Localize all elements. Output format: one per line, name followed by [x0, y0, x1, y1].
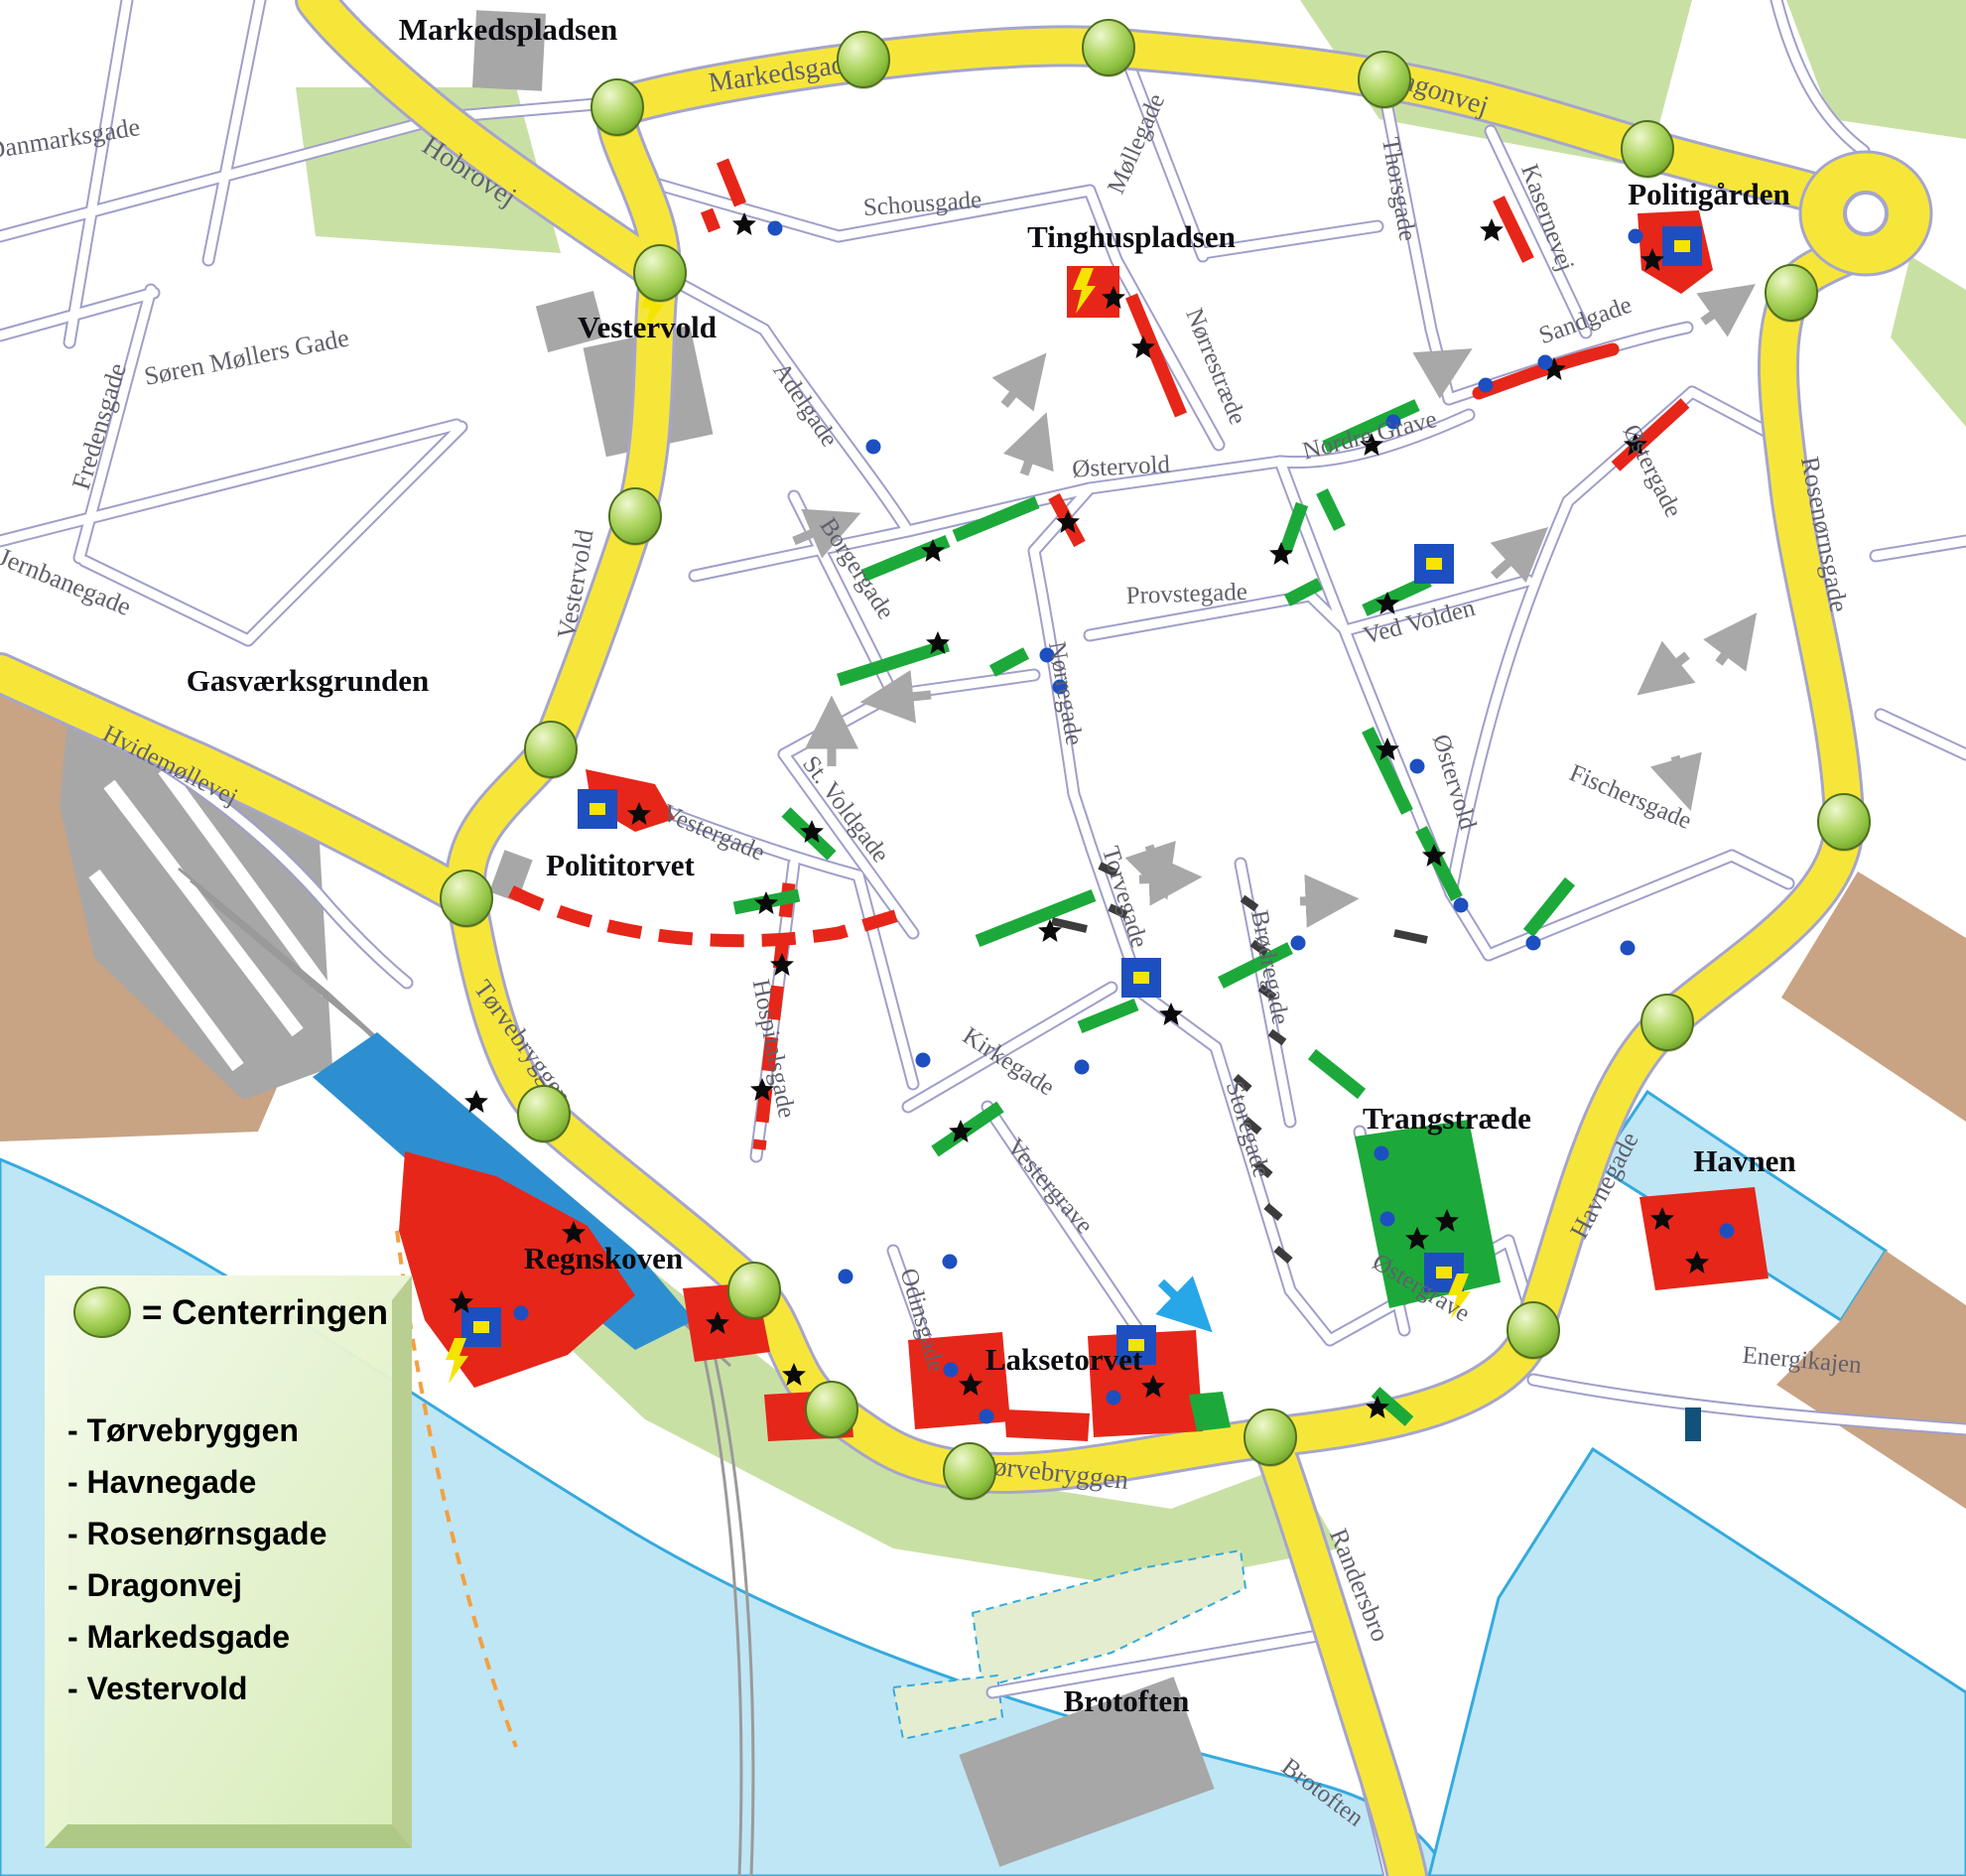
dot-marker	[1410, 759, 1425, 774]
centerring-marker	[609, 488, 661, 544]
roundabout	[1800, 152, 1931, 275]
street-label: Odinsgade	[894, 1266, 949, 1375]
legend: = Centerringen - Tørvebryggen - Havnegad…	[45, 1275, 412, 1848]
incident-area-red	[1639, 1187, 1769, 1290]
direction-arrow	[1494, 536, 1538, 576]
dot-marker	[1075, 1060, 1090, 1075]
centerring-marker	[1766, 265, 1817, 321]
centerring-marker	[591, 79, 643, 135]
dot-marker	[1380, 1212, 1395, 1227]
dot-marker	[1107, 1391, 1121, 1406]
legend-item: - Vestervold	[67, 1671, 247, 1706]
dot-marker	[1291, 936, 1306, 951]
place-label: Markedspladsen	[399, 12, 617, 47]
dot-marker	[1720, 1224, 1735, 1239]
place-label: Tinghuspladsen	[1027, 219, 1236, 254]
dot-marker	[916, 1053, 931, 1068]
centerring-marker	[1818, 794, 1870, 850]
place-label: Vestervold	[578, 310, 717, 344]
place-label: Gasværksgrunden	[187, 663, 430, 698]
centerring-marker	[441, 871, 492, 926]
street-label: Vestergrave	[1001, 1134, 1098, 1239]
dot-marker	[1479, 378, 1494, 393]
centerring-marker	[1083, 20, 1134, 75]
dot-marker	[514, 1306, 529, 1321]
dot-marker	[1621, 941, 1636, 956]
centerring-marker	[944, 1443, 995, 1499]
place-label: Havnen	[1693, 1143, 1795, 1178]
centerring-marker	[838, 32, 889, 87]
street-label: Danmarksgade	[0, 112, 142, 165]
camera-marker-center	[1426, 558, 1442, 570]
dot-marker	[980, 1409, 994, 1424]
dot-marker	[943, 1255, 958, 1270]
incident-area-red	[1004, 1409, 1090, 1441]
centerring-marker	[1245, 1409, 1296, 1465]
street-label: Fredensgade	[66, 359, 132, 492]
street-label: Nørrestræde	[1180, 305, 1250, 429]
street-segment-green	[1312, 1054, 1362, 1094]
dot-marker	[1538, 355, 1553, 370]
street-label: Adelgade	[767, 358, 843, 453]
dot-marker	[866, 440, 881, 455]
place-label: Trangstræde	[1363, 1101, 1531, 1136]
camera-marker-center	[590, 803, 605, 815]
direction-arrow-blue	[1161, 1282, 1203, 1323]
direction-arrow	[1004, 363, 1038, 405]
map-screenshot: DanmarksgadeFredensgadeSøren Møllers Gad…	[0, 0, 1966, 1876]
street-segment-red-dashed	[511, 891, 898, 941]
centerring-marker	[525, 722, 577, 777]
centerring-marker	[1641, 995, 1693, 1050]
quay-structure	[1685, 1407, 1701, 1441]
legend-item: - Rosenørnsgade	[67, 1516, 327, 1551]
dot-marker	[1454, 898, 1469, 913]
dot-marker	[1375, 1146, 1389, 1161]
centerring-marker	[634, 245, 686, 301]
legend-item: - Havnegade	[67, 1464, 256, 1500]
dot-marker	[1629, 229, 1643, 244]
star-marker	[1480, 218, 1504, 241]
dot-marker	[1526, 936, 1541, 951]
direction-arrow	[1139, 877, 1189, 879]
dot-marker	[768, 221, 783, 236]
street-label: Provstegade	[1125, 579, 1247, 609]
direction-arrow	[1703, 292, 1745, 322]
street-segment-green	[1285, 504, 1302, 552]
street-segment-dark	[1394, 933, 1427, 940]
camera-marker-center	[1674, 240, 1690, 252]
place-label: Politigården	[1628, 177, 1790, 211]
direction-arrow	[1300, 899, 1346, 901]
street-label: Hospitalsgade	[747, 977, 801, 1120]
direction-arrow	[1719, 623, 1749, 663]
centerring-marker	[1359, 52, 1410, 107]
city-map: DanmarksgadeFredensgadeSøren Møllers Gad…	[0, 0, 1966, 1876]
street-segment-green	[1322, 491, 1340, 528]
legend-item: - Dragonvej	[67, 1567, 242, 1603]
place-label: Polititorvet	[546, 848, 695, 882]
legend-marker-icon	[74, 1287, 130, 1337]
street-label: Nørregade	[1043, 639, 1088, 747]
direction-arrow	[1675, 756, 1687, 798]
centerring-marker	[806, 1382, 857, 1437]
centerring-marker	[1507, 1302, 1559, 1358]
direction-arrow	[1647, 655, 1687, 687]
street-label: Søren Møllers Gade	[142, 323, 351, 390]
street-label: Østervold	[1072, 451, 1171, 482]
place-label: Regnskoven	[524, 1241, 683, 1275]
place-label: Laksetorvet	[985, 1342, 1143, 1377]
centerring-marker	[518, 1086, 570, 1141]
legend-title: = Centerringen	[142, 1293, 388, 1332]
street-segment-green	[978, 895, 1094, 941]
place-label: Brotoften	[1064, 1683, 1190, 1718]
dot-marker	[839, 1270, 853, 1284]
camera-marker-center	[473, 1321, 489, 1333]
direction-arrow	[1024, 425, 1042, 474]
street-segment-green	[992, 653, 1026, 671]
camera-marker-center	[1133, 972, 1149, 984]
street-segment-red	[707, 210, 715, 230]
legend-item: - Tørvebryggen	[67, 1412, 299, 1448]
direction-arrow	[873, 695, 931, 701]
street-label: Storegade	[1221, 1078, 1275, 1180]
centerring-marker	[728, 1263, 780, 1318]
centerring-marker	[1622, 121, 1673, 177]
legend-item: - Markedsgade	[67, 1619, 290, 1655]
camera-marker-center	[1436, 1267, 1452, 1278]
